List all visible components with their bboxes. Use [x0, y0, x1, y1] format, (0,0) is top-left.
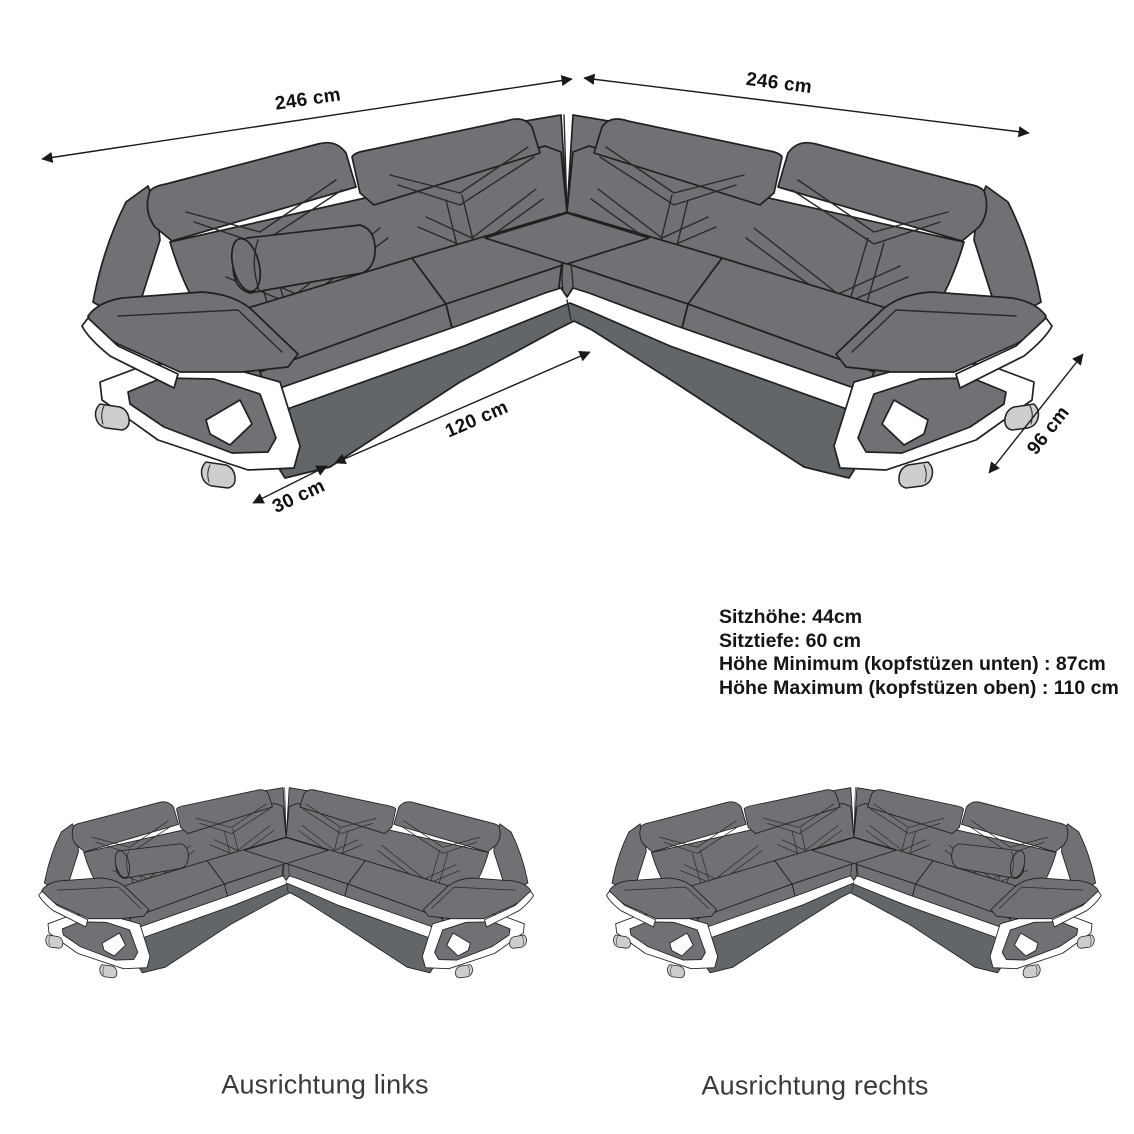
caption-orientation-left: Ausrichtung links: [221, 1070, 429, 1101]
variant-left-illustration: [39, 788, 534, 978]
variant-right-illustration: [606, 788, 1101, 978]
spec-seat-height: Sitzhöhe: 44cm: [719, 606, 1119, 630]
sofa-diagram-canvas: [0, 0, 1134, 1134]
main-sofa-illustration: [82, 115, 1052, 488]
spec-height-max: Höhe Maximum (kopfstüzen oben) : 110 cm: [719, 677, 1119, 701]
product-dimension-diagram: 246 cm 246 cm 120 cm 30 cm 96 cm Sitzhöh…: [0, 0, 1134, 1134]
spec-height-min: Höhe Minimum (kopfstüzen unten) : 87cm: [719, 653, 1119, 677]
spec-seat-depth: Sitztiefe: 60 cm: [719, 630, 1119, 654]
spec-list: Sitzhöhe: 44cm Sitztiefe: 60 cm Höhe Min…: [719, 606, 1119, 700]
caption-orientation-right: Ausrichtung rechts: [701, 1071, 928, 1102]
